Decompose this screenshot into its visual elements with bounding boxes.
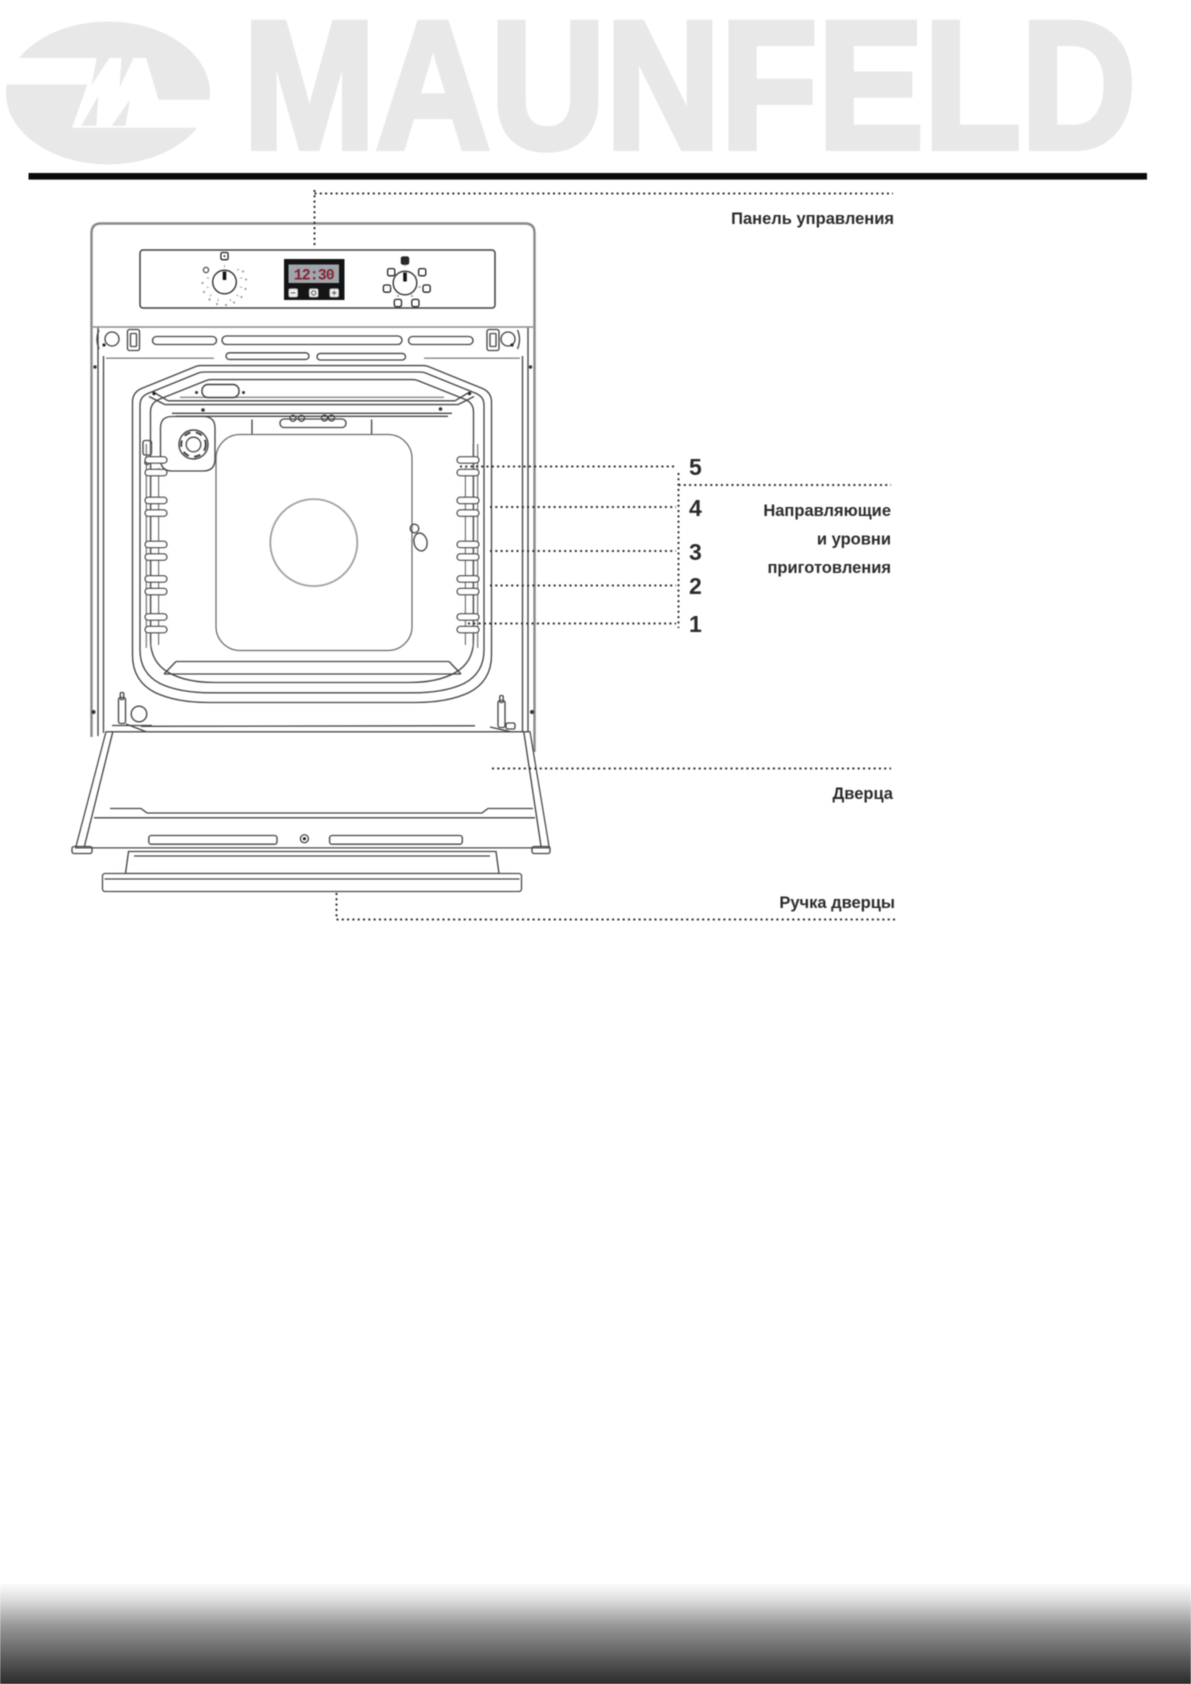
svg-text:Направляющие: Направляющие — [763, 502, 891, 520]
svg-text:12:30: 12:30 — [294, 267, 335, 285]
svg-text:и уровни: и уровни — [817, 531, 891, 549]
svg-text:1: 1 — [689, 611, 702, 637]
svg-text:Дверца: Дверца — [833, 785, 894, 803]
svg-text:3: 3 — [689, 539, 702, 565]
svg-text:2: 2 — [689, 573, 702, 599]
svg-text:MAUNFELD: MAUNFELD — [243, 0, 1136, 187]
svg-text:5: 5 — [689, 454, 702, 480]
svg-text:Ручка дверцы: Ручка дверцы — [779, 894, 895, 912]
svg-text:приготовления: приготовления — [767, 559, 891, 577]
svg-text:4: 4 — [689, 495, 702, 521]
svg-text:Панель управления: Панель управления — [731, 210, 894, 228]
